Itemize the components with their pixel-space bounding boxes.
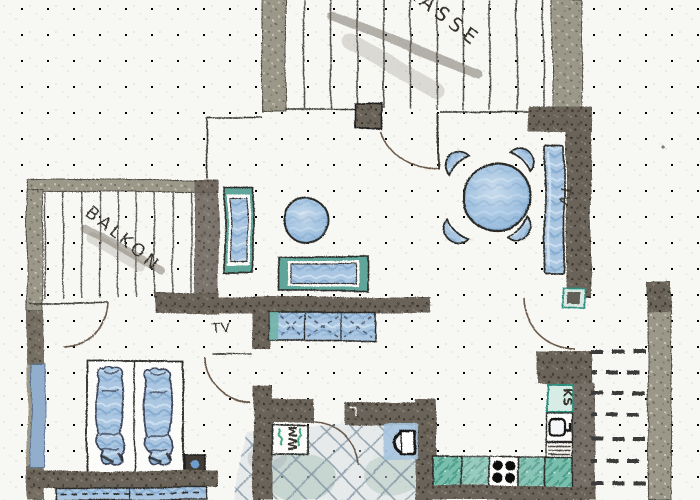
pencil-speck — [661, 145, 664, 148]
kitchen-counter — [432, 457, 573, 487]
fridge: KS — [547, 384, 575, 412]
outer-wall-right — [648, 282, 671, 500]
counter-cell — [432, 457, 461, 487]
floorplan-svg: TERRASSE BALKON — [0, 0, 700, 500]
outer-wall-cap — [648, 282, 671, 312]
tv-label-hall: TV — [209, 320, 231, 337]
bed-right-blanket — [144, 368, 172, 465]
balcony-wall-left — [27, 190, 43, 310]
washing-machine: WM — [272, 425, 308, 455]
wall-fixture — [563, 288, 585, 308]
stove — [490, 457, 519, 487]
wardrobe — [56, 488, 206, 500]
kitchen-sink — [547, 413, 573, 441]
kitchen-wall-top — [537, 351, 592, 383]
terrace-door-post — [355, 104, 382, 129]
counter-cell — [519, 457, 546, 487]
kitchen-south-wall — [424, 486, 595, 500]
bedroom-radiator — [31, 365, 45, 468]
living-room-south-wall — [193, 297, 430, 313]
floorplan-page: TERRASSE BALKON — [0, 0, 700, 500]
washer-label: WM — [285, 426, 300, 452]
toilet — [384, 422, 418, 460]
east-wall-corner — [528, 106, 592, 132]
bedroom-wall-left-dark — [27, 310, 44, 365]
counter-cell — [546, 457, 573, 487]
east-wall — [566, 130, 591, 298]
hall-sideboard — [269, 312, 376, 340]
balcony-wall-top — [27, 180, 218, 192]
bathroom-wall-top-left — [253, 399, 314, 422]
fridge-label: KS — [560, 387, 575, 406]
beds — [87, 361, 183, 473]
balcony-wall-right — [194, 179, 218, 298]
sofa-vertical — [224, 187, 253, 273]
terrace-wall-right — [552, 0, 582, 108]
coffee-table — [284, 198, 328, 242]
counter-cell — [461, 457, 490, 487]
sofa-horizontal — [279, 257, 368, 291]
terrace-wall-left — [262, 0, 286, 112]
dining-table-top — [467, 167, 527, 227]
bedroom-south-wall — [28, 471, 218, 488]
hall-wall-stub — [252, 311, 271, 349]
bed-left-blanket — [96, 367, 124, 464]
